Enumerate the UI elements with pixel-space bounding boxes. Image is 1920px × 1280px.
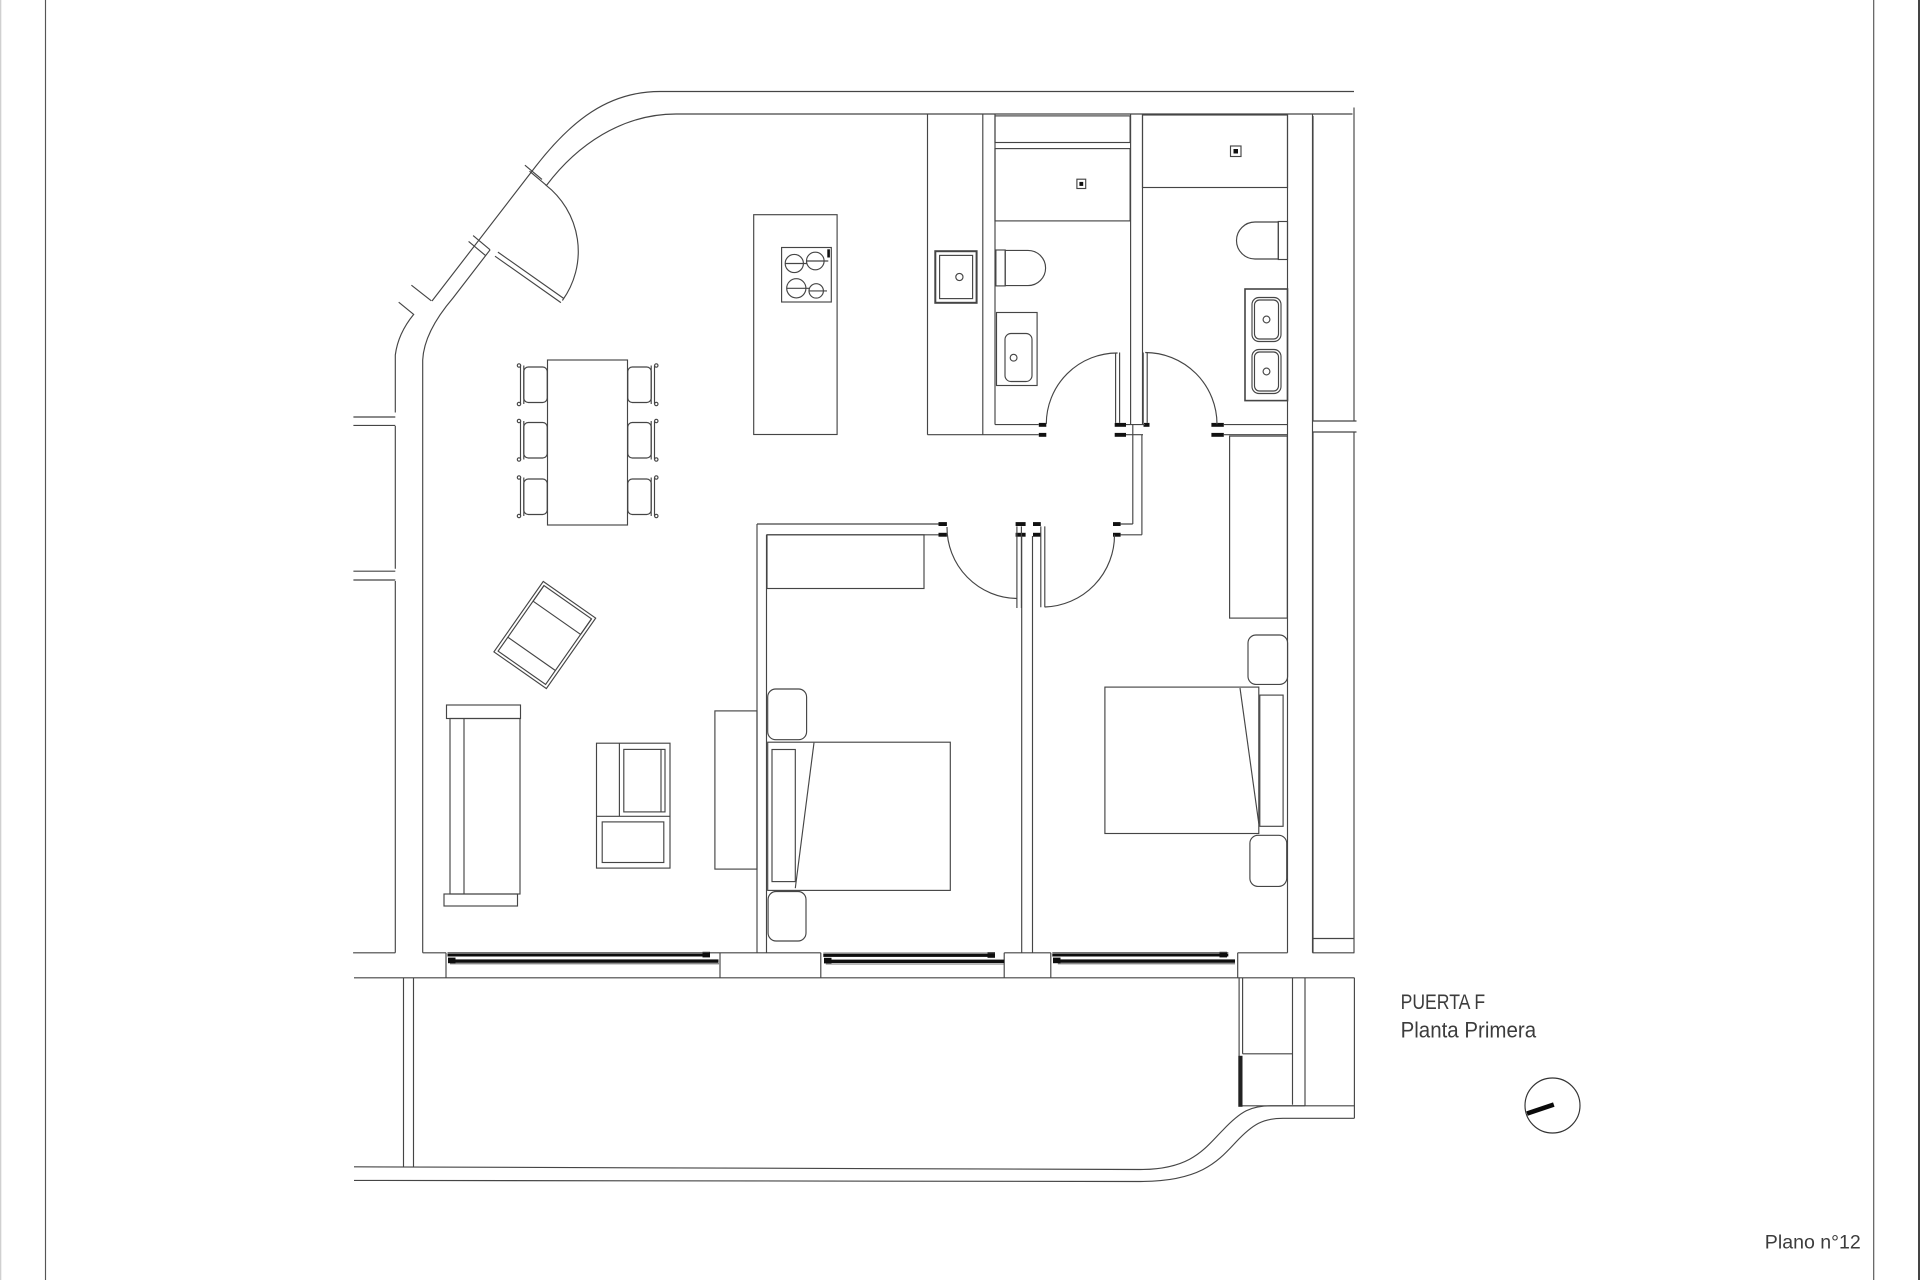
svg-text:Plano n°12: Plano n°12 — [1765, 1232, 1861, 1253]
svg-text:PUERTA F: PUERTA F — [1401, 991, 1486, 1014]
svg-text:Planta Primera: Planta Primera — [1401, 1018, 1537, 1043]
